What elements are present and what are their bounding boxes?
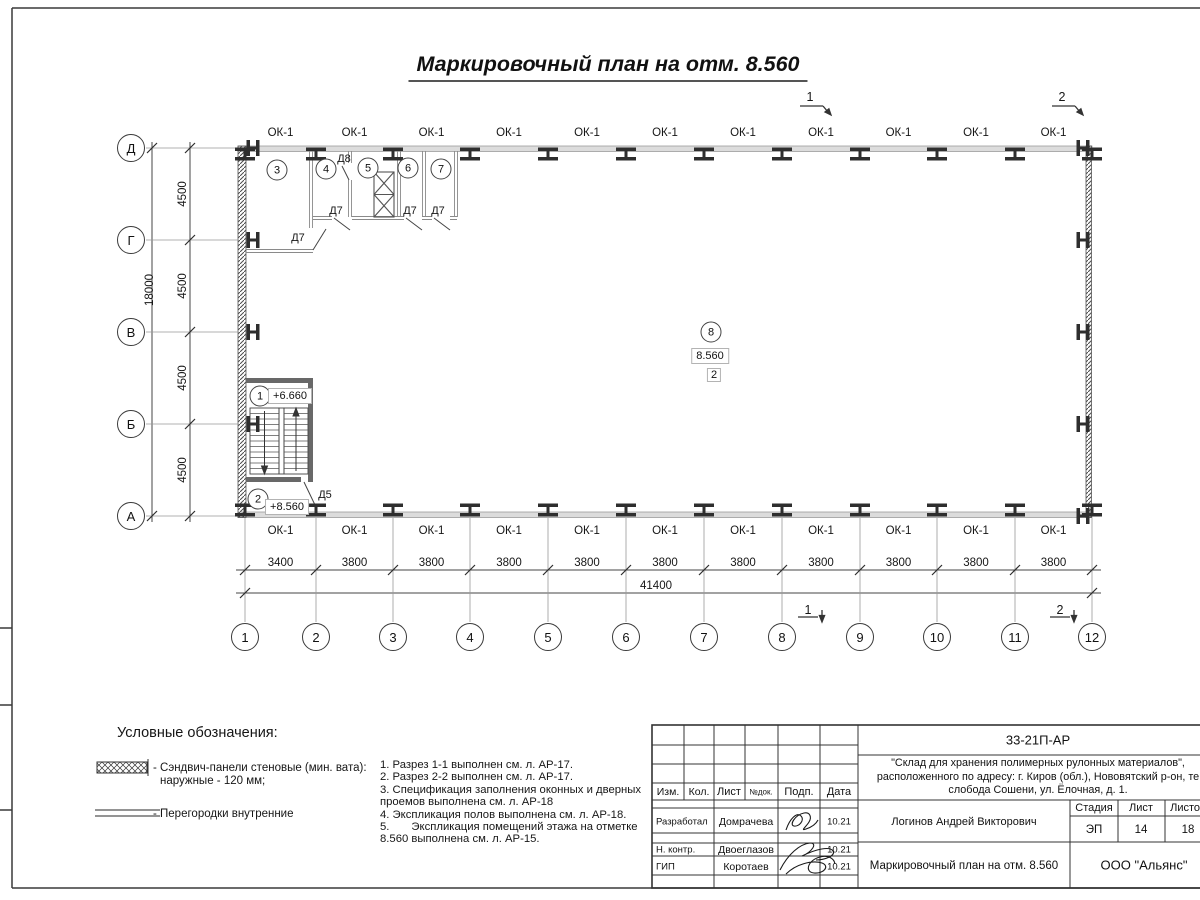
- bay-dimension: 3800: [886, 557, 912, 569]
- legend-sandwich-swatch: [97, 762, 147, 773]
- wall-top: [238, 146, 1092, 152]
- axis-bubble-row-3: В: [117, 318, 145, 346]
- window-mark-bottom: ОК-1: [808, 525, 834, 537]
- section-marks: [798, 106, 1083, 622]
- window-mark-bottom: ОК-1: [886, 525, 912, 537]
- dimension-lines: [152, 142, 1101, 593]
- level-box-hall: 8.560: [691, 348, 729, 364]
- bay-dimension: 3800: [652, 557, 678, 569]
- window-mark-top: ОК-1: [342, 127, 368, 139]
- section-mark-1-top: 1: [807, 90, 814, 104]
- sheet-label: Лист: [1129, 802, 1153, 814]
- legend-sandwich-label-2: наружные - 120 мм;: [160, 775, 265, 787]
- bay-dimension: 3800: [963, 557, 989, 569]
- row-role-gip: ГИП: [656, 862, 675, 873]
- row-dimension: 4500: [177, 273, 189, 299]
- window-mark-top: ОК-1: [268, 127, 294, 139]
- axis-bubble-row-1: Д: [117, 134, 145, 162]
- window-mark-top: ОК-1: [808, 127, 834, 139]
- note-line-1: 1. Разрез 1-1 выполнен см. л. АР-17.: [380, 759, 573, 771]
- approver-name: Логинов Андрей Викторович: [891, 816, 1036, 828]
- axis-leader-lines: [146, 148, 1092, 622]
- note-line-7: 8.560 выполнена см. л. АР-15.: [380, 833, 540, 845]
- doc-code: 33-21П-АР: [1006, 733, 1070, 748]
- note-line-5: 4. Экспликация полов выполнена см. л. АР…: [380, 809, 626, 821]
- total-width-dimension: 41400: [640, 580, 672, 592]
- wall-left: [238, 146, 246, 518]
- door-mark-d7-room7: Д7: [431, 205, 445, 217]
- window-mark-top: ОК-1: [496, 127, 522, 139]
- company-name: ООО "Альянс": [1101, 858, 1188, 873]
- titleblock-drawing-title: Маркировочный план на отм. 8.560: [870, 860, 1058, 872]
- bay-dimension: 3800: [342, 557, 368, 569]
- zone-tag-box: 2: [707, 368, 721, 382]
- row-dimension: 4500: [177, 457, 189, 483]
- row-date-2: 10.21: [827, 845, 851, 856]
- axis-bubble-8: 8: [768, 623, 796, 651]
- stage-value: ЭП: [1086, 824, 1103, 836]
- window-mark-top: ОК-1: [886, 127, 912, 139]
- legend-partitions-label: - Перегородки внутренние: [153, 808, 294, 820]
- window-mark-top: ОК-1: [419, 127, 445, 139]
- plan-title: Маркировочный план на отм. 8.560: [408, 52, 807, 82]
- room-tag-5: 5: [358, 158, 379, 179]
- drawing-sheet: Маркировочный план на отм. 8.560 1 2 1 2…: [0, 0, 1200, 900]
- row-name-domracheva: Домрачева: [719, 816, 773, 828]
- axis-bubble-9: 9: [846, 623, 874, 651]
- legend-heading: Условные обозначения:: [117, 725, 278, 741]
- page: { "sheet": { "title": "Маркировочный пла…: [0, 0, 1200, 900]
- row-dimension: 4500: [177, 181, 189, 207]
- level-box-stair-lower: +8.560: [265, 499, 309, 515]
- sheet-frame: [0, 8, 1200, 888]
- sheet-number: 14: [1135, 824, 1148, 836]
- col-header-podp: Подп.: [784, 786, 813, 798]
- section-mark-2-top: 2: [1059, 90, 1066, 104]
- bay-dimension: 3800: [574, 557, 600, 569]
- col-header-data: Дата: [827, 786, 851, 798]
- level-box-stair-upper: +6.660: [268, 388, 312, 404]
- legend-sandwich-label-1: - Сэндвич-панели стеновые (мин. вата):: [153, 762, 367, 774]
- window-mark-bottom: ОК-1: [652, 525, 678, 537]
- wall-bottom: [238, 512, 1092, 518]
- axis-bubble-5: 5: [534, 623, 562, 651]
- window-mark-top: ОК-1: [730, 127, 756, 139]
- axis-bubble-row-4: Б: [117, 410, 145, 438]
- stair-wall-bottom: [246, 477, 301, 482]
- window-mark-top: ОК-1: [652, 127, 678, 139]
- axis-bubble-4: 4: [456, 623, 484, 651]
- col-header-izm: Изм.: [657, 786, 680, 798]
- row-role-nkontr: Н. контр.: [656, 845, 695, 856]
- window-mark-bottom: ОК-1: [342, 525, 368, 537]
- bay-dimension: 3800: [496, 557, 522, 569]
- axis-bubble-row-2: Г: [117, 226, 145, 254]
- axis-bubble-10: 10: [923, 623, 951, 651]
- window-mark-bottom: ОК-1: [1041, 525, 1067, 537]
- sheets-label: Листов: [1170, 802, 1200, 814]
- stage-label: Стадия: [1075, 802, 1113, 814]
- row-date-3: 10.21: [827, 862, 851, 873]
- row-role-razrabotal: Разработал: [656, 817, 708, 828]
- project-name-line-3: слобода Сошени, ул. Ёлочная, д. 1.: [948, 784, 1127, 796]
- project-name-line-1: "Склад для хранения полимерных рулонных …: [891, 757, 1185, 769]
- note-line-6: 5. Экспликация помещений этажа на отметк…: [380, 821, 638, 833]
- door-mark-d7-room4: Д7: [329, 205, 343, 217]
- legend-symbols: [95, 759, 160, 816]
- window-mark-bottom: ОК-1: [419, 525, 445, 537]
- bay-dimension: 3800: [730, 557, 756, 569]
- legend-partition-symbol: [95, 810, 160, 816]
- axis-bubble-row-5: А: [117, 502, 145, 530]
- stair-wall-top: [246, 378, 313, 383]
- room-tag-8: 8: [701, 322, 722, 343]
- bay-dimension: 3800: [419, 557, 445, 569]
- axis-bubble-12: 12: [1078, 623, 1106, 651]
- section-mark-1-bottom: 1: [805, 603, 812, 617]
- row-name-korotaev: Коротаев: [723, 861, 768, 873]
- room-tag-6: 6: [398, 158, 419, 179]
- col-header-kol: Кол.: [689, 786, 710, 798]
- axis-bubble-6: 6: [612, 623, 640, 651]
- window-mark-top: ОК-1: [963, 127, 989, 139]
- room-tag-3: 3: [267, 160, 288, 181]
- room-tag-7: 7: [431, 159, 452, 180]
- window-mark-bottom: ОК-1: [574, 525, 600, 537]
- total-depth-dimension: 18000: [144, 274, 156, 306]
- door-mark-d7-room6: Д7: [403, 205, 417, 217]
- door-mark-d8: Д8: [337, 153, 351, 165]
- row-date-1: 10.21: [827, 817, 851, 828]
- door-mark-d7-room3: Д7: [291, 232, 305, 244]
- shaft: [374, 172, 394, 217]
- room-tag-4: 4: [316, 159, 337, 180]
- window-mark-top: ОК-1: [574, 127, 600, 139]
- axis-bubble-3: 3: [379, 623, 407, 651]
- note-line-3: 3. Спецификация заполнения оконных и две…: [380, 784, 641, 796]
- window-mark-bottom: ОК-1: [730, 525, 756, 537]
- note-line-4: проемов выполнена см. л. АР-18: [380, 796, 553, 808]
- window-mark-top: ОК-1: [1041, 127, 1067, 139]
- exterior-walls: [238, 146, 1092, 518]
- bay-dimension: 3400: [268, 557, 294, 569]
- columns: [235, 140, 1102, 524]
- col-header-list: Лист: [717, 786, 741, 798]
- row-dimension: 4500: [177, 365, 189, 391]
- axis-bubble-7: 7: [690, 623, 718, 651]
- axis-bubble-11: 11: [1001, 623, 1029, 651]
- axis-bubble-2: 2: [302, 623, 330, 651]
- section-mark-2-bottom: 2: [1057, 603, 1064, 617]
- door-mark-d5: Д5: [318, 489, 332, 501]
- note-line-2: 2. Разрез 2-2 выполнен см. л. АР-17.: [380, 771, 573, 783]
- bay-dimension: 3800: [1041, 557, 1067, 569]
- project-name-line-2: расположенного по адресу: г. Киров (обл.…: [877, 771, 1199, 783]
- signature-1: [786, 813, 818, 830]
- col-header-ndok: №док.: [749, 788, 772, 797]
- row-name-dvoeglazov: Двоеглазов: [718, 844, 774, 856]
- axis-bubble-1: 1: [231, 623, 259, 651]
- bay-dimension: 3800: [808, 557, 834, 569]
- window-mark-bottom: ОК-1: [963, 525, 989, 537]
- window-mark-bottom: ОК-1: [496, 525, 522, 537]
- window-mark-bottom: ОК-1: [268, 525, 294, 537]
- sheets-total: 18: [1182, 824, 1195, 836]
